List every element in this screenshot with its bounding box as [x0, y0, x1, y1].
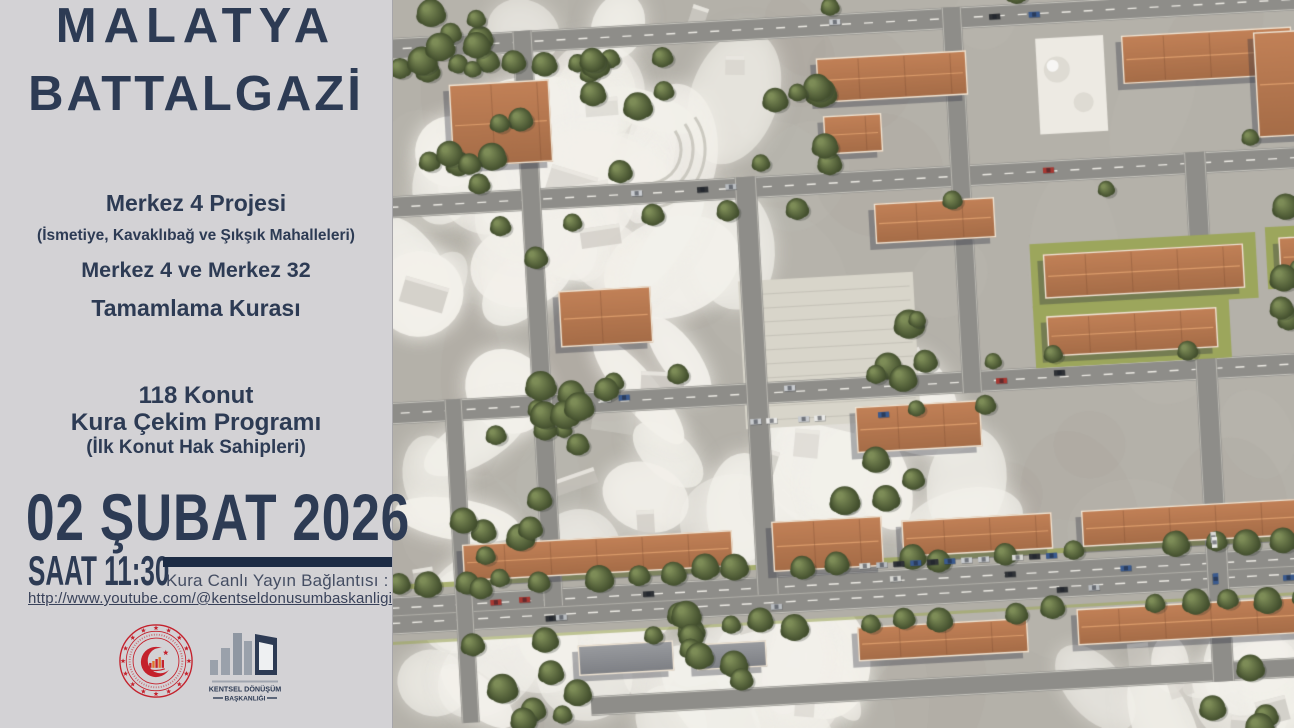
title-line-2: BATTALGAZİ: [0, 70, 392, 119]
kdb-microtext-line: [212, 681, 278, 683]
divider-bar: [163, 557, 392, 567]
lottery-program-title: Kura Çekim Programı: [0, 409, 392, 437]
aerial-render-canvas: [392, 0, 1294, 728]
beneficiary-note: (İlk Konut Hak Sahipleri): [0, 437, 392, 459]
poster-root: MALATYA BATTALGAZİ Merkez 4 Projesi (İsm…: [0, 0, 1294, 728]
event-date: 02 ŞUBAT 2026: [26, 484, 518, 550]
housing-count: 118 Konut: [0, 382, 392, 410]
kdb-name-line-2: BAŞKANLIĞI: [224, 694, 265, 703]
stream-url-link[interactable]: http://www.youtube.com/@kentseldonusumba…: [28, 590, 392, 607]
project-phases: Merkez 4 ve Merkez 32: [0, 258, 392, 283]
title-line-1: MALATYA: [0, 2, 392, 51]
ministry-seal-logo: [117, 622, 195, 700]
project-lottery-type: Tamamlama Kurası: [0, 295, 392, 321]
seal-crescent-emblem: [141, 647, 173, 677]
stream-label: Kura Canlı Yayın Bağlantısı :: [166, 571, 389, 591]
kdb-logo: KENTSEL DÖNÜŞÜM BAŞKANLIĞI: [206, 620, 284, 704]
info-panel: MALATYA BATTALGAZİ Merkez 4 Projesi (İsm…: [0, 0, 393, 728]
project-name: Merkez 4 Projesi: [0, 190, 392, 216]
kdb-buildings-icon: [210, 633, 277, 675]
project-neighborhoods: (İsmetiye, Kavaklıbağ ve Şıkşık Mahallel…: [0, 227, 392, 245]
kdb-name-line-1: KENTSEL DÖNÜŞÜM: [209, 685, 282, 694]
aerial-view: [392, 0, 1294, 728]
